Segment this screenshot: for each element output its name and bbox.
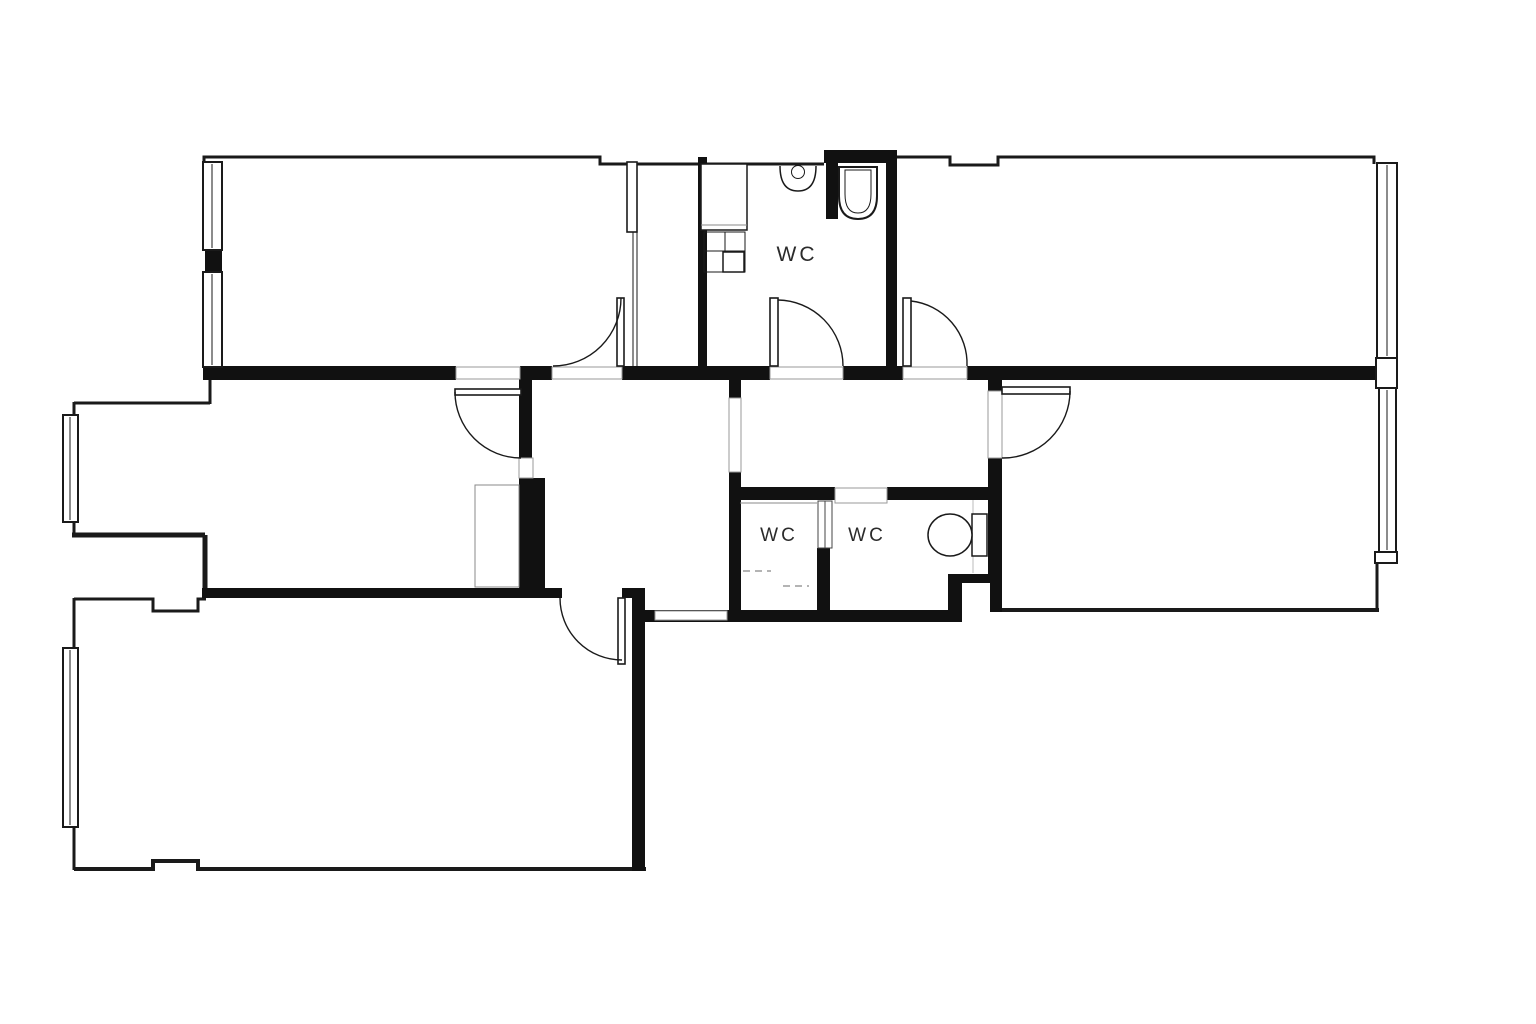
threshold-rightwc-door xyxy=(835,488,887,503)
door-leaf-topright-room xyxy=(903,298,911,366)
threshold-kitchen-door xyxy=(456,367,520,379)
leftwc-door-panel-a xyxy=(818,501,825,548)
exterior-wall-top-left xyxy=(204,157,824,164)
threshold-rightroom-door xyxy=(988,391,1002,458)
exterior-wall-kitchen-bottom xyxy=(72,535,205,589)
wall-main-horizontal-b xyxy=(520,366,552,380)
closet xyxy=(627,162,637,366)
threshold-entry-door xyxy=(655,611,727,620)
threshold-topright-room-door xyxy=(903,367,967,379)
wall-topwc-top xyxy=(824,150,897,163)
window-pier-right-upper xyxy=(1376,358,1397,388)
wall-rightwc-right xyxy=(988,458,1002,578)
closet-door-leaf xyxy=(627,162,637,232)
wall-hall-divider-upper xyxy=(729,366,741,400)
door-leaf-kitchen xyxy=(455,389,521,395)
wall-shaft-right xyxy=(990,583,1002,612)
exterior-wall-bottom-room-bottom xyxy=(74,861,646,869)
label-left-wc: WC xyxy=(760,525,798,546)
cistern-icon xyxy=(972,514,987,556)
door-arc-topleft-room xyxy=(553,298,621,366)
counter-icon xyxy=(475,485,519,587)
wall-topwc-right xyxy=(886,155,897,366)
washer-icon xyxy=(701,164,747,230)
floorplan-canvas: WC WC WC xyxy=(0,0,1536,1024)
wall-toilet-stub xyxy=(826,155,838,219)
wall-main-horizontal-c xyxy=(622,366,770,380)
door-arc-rightroom xyxy=(1002,391,1070,458)
door-arc-bottom-room xyxy=(560,598,622,660)
wall-rightroom-door-stub xyxy=(988,380,1002,391)
wall-wc-top-a xyxy=(729,487,835,500)
wall-bottom-room-top-thick xyxy=(202,588,562,598)
threshold-topwc-door xyxy=(770,367,843,379)
doors xyxy=(455,298,1070,664)
label-right-wc: WC xyxy=(848,525,886,546)
exterior-wall-kitchen-top xyxy=(74,380,210,404)
wall-wc-divider xyxy=(817,548,830,612)
passthrough-kitchen-hatch xyxy=(519,458,533,478)
wall-bottom-room-right xyxy=(632,588,645,871)
door-leaf-rightroom xyxy=(1002,387,1070,394)
wall-main-horizontal-d xyxy=(843,366,903,380)
wall-main-horizontal-e xyxy=(967,366,1377,380)
passage-hall-to-hall xyxy=(729,398,741,472)
wall-shaft-top xyxy=(948,574,1002,583)
door-arc-kitchen xyxy=(455,392,521,458)
door-leaf-bottom-room xyxy=(618,598,625,664)
wall-main-horizontal-a xyxy=(203,366,456,380)
threshold-topleft-room-door xyxy=(552,367,622,379)
cabinet-drawer xyxy=(723,252,744,272)
right-wc-fixtures xyxy=(928,500,987,573)
wall-window-pier-left xyxy=(205,250,222,272)
exterior-wall-bottom-room-top xyxy=(74,599,206,611)
exterior-wall-top-right xyxy=(897,157,1374,165)
window-pier-right-lower xyxy=(1375,552,1397,563)
toilet-bowl-icon xyxy=(928,514,972,556)
wall-hall-left-lower xyxy=(519,478,545,590)
door-leaf-topwc xyxy=(770,298,778,366)
door-arc-topwc xyxy=(778,300,843,366)
wall-wc-top-b xyxy=(887,487,1002,500)
floorplan-svg: WC WC WC xyxy=(0,0,1536,1024)
leftwc-door-panel-b xyxy=(825,501,832,548)
label-top-wc: WC xyxy=(777,243,818,266)
door-arc-topright-room xyxy=(911,301,967,366)
